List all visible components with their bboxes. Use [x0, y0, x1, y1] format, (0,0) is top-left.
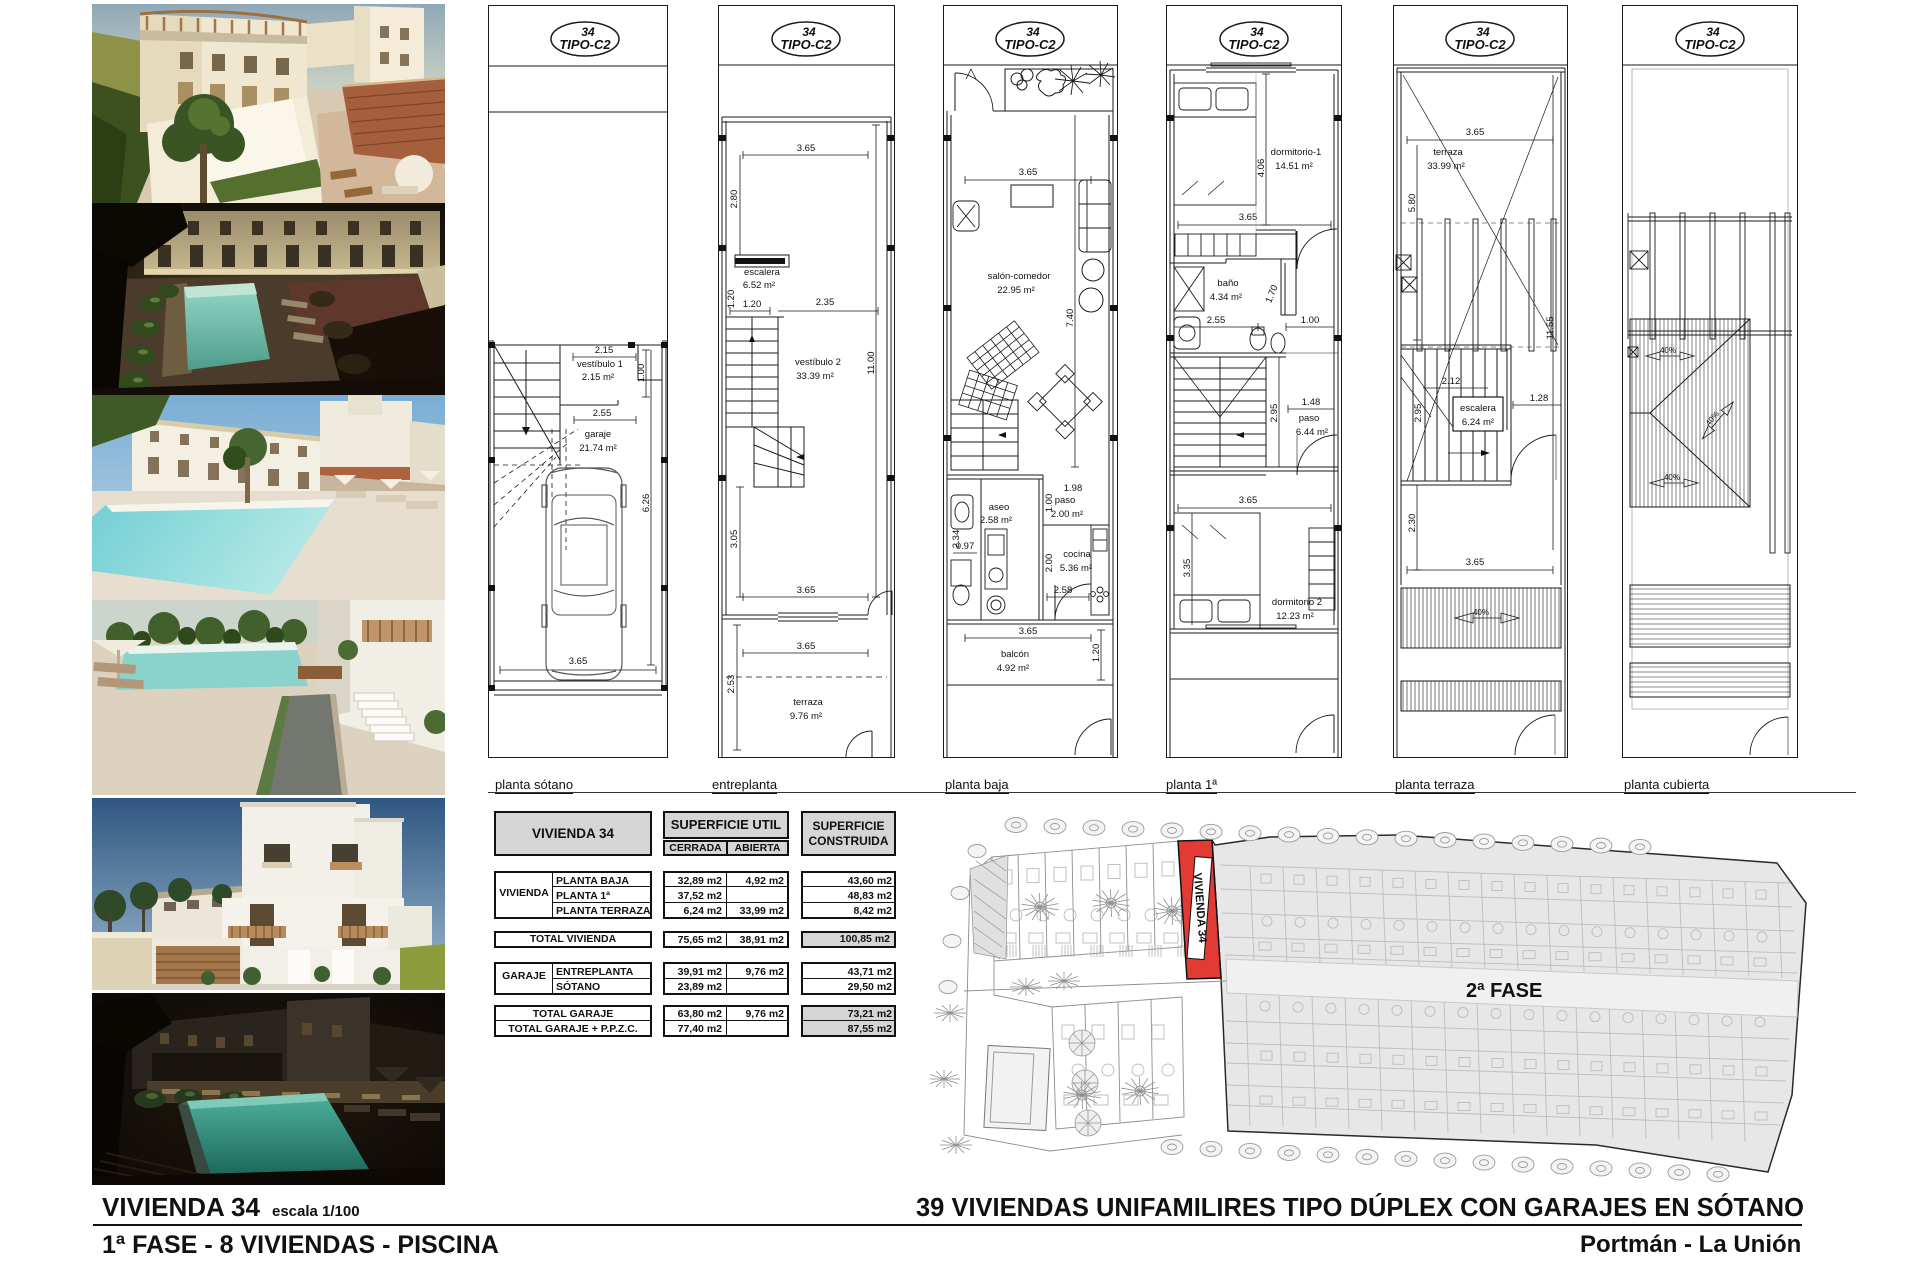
svg-text:1.70: 1.70	[1264, 283, 1281, 304]
svg-text:TIPO-C2: TIPO-C2	[559, 37, 611, 52]
svg-text:5.80: 5.80	[1407, 194, 1418, 213]
svg-text:2.00 m²: 2.00 m²	[1051, 509, 1083, 520]
svg-text:2.95: 2.95	[1413, 404, 1424, 423]
svg-text:2.34: 2.34	[951, 530, 962, 549]
svg-text:salón-comedor: salón-comedor	[988, 271, 1051, 282]
svg-text:40%: 40%	[1660, 346, 1676, 355]
svg-text:21.74 m²: 21.74 m²	[579, 443, 617, 454]
svg-text:escalera: escalera	[1460, 403, 1497, 414]
svg-text:3.65: 3.65	[1239, 212, 1258, 223]
svg-text:3.65: 3.65	[1466, 127, 1485, 138]
svg-text:2.53: 2.53	[726, 675, 737, 694]
svg-text:3.05: 3.05	[729, 530, 740, 549]
svg-text:1.00: 1.00	[1044, 494, 1055, 513]
svg-text:40%: 40%	[1704, 409, 1721, 427]
svg-text:2.15 m²: 2.15 m²	[582, 372, 614, 383]
svg-text:TIPO-C2: TIPO-C2	[1684, 37, 1736, 52]
svg-text:2.55: 2.55	[593, 408, 612, 419]
svg-text:TIPO-C2: TIPO-C2	[1004, 37, 1056, 52]
svg-text:balcón: balcón	[1001, 649, 1029, 660]
svg-text:2.15: 2.15	[595, 345, 614, 356]
svg-text:escalera: escalera	[744, 267, 781, 278]
svg-text:33.39 m²: 33.39 m²	[796, 371, 834, 382]
svg-text:1.00: 1.00	[636, 364, 647, 383]
svg-text:22.95 m²: 22.95 m²	[997, 285, 1035, 296]
svg-text:6.26: 6.26	[641, 494, 652, 513]
svg-text:2.95: 2.95	[1269, 404, 1280, 423]
svg-text:1.48: 1.48	[1302, 397, 1321, 408]
svg-text:garaje: garaje	[585, 429, 611, 440]
svg-text:TIPO-C2: TIPO-C2	[1454, 37, 1506, 52]
svg-text:TIPO-C2: TIPO-C2	[780, 37, 832, 52]
svg-text:4.34 m²: 4.34 m²	[1210, 292, 1242, 303]
svg-text:2.12: 2.12	[1442, 376, 1461, 387]
svg-text:paso: paso	[1055, 495, 1076, 506]
svg-text:3.65: 3.65	[1019, 626, 1038, 637]
svg-text:2.35: 2.35	[816, 297, 835, 308]
svg-text:3.35: 3.35	[1182, 559, 1193, 578]
svg-text:6.52 m²: 6.52 m²	[743, 280, 775, 291]
svg-text:11.00: 11.00	[866, 351, 877, 374]
svg-text:2.80: 2.80	[729, 190, 740, 209]
svg-text:3.65: 3.65	[1019, 167, 1038, 178]
svg-text:2.58 m²: 2.58 m²	[980, 515, 1012, 526]
svg-text:2.58: 2.58	[1054, 585, 1073, 596]
svg-text:cocina: cocina	[1063, 549, 1091, 560]
svg-text:3.65: 3.65	[797, 585, 816, 596]
svg-text:3.65: 3.65	[569, 656, 588, 667]
svg-text:33.99 m²: 33.99 m²	[1427, 161, 1465, 172]
svg-text:paso: paso	[1299, 413, 1320, 424]
svg-text:terraza: terraza	[793, 697, 823, 708]
svg-text:TIPO-C2: TIPO-C2	[1228, 37, 1280, 52]
svg-text:6.24 m²: 6.24 m²	[1462, 417, 1494, 428]
svg-text:6.44 m²: 6.44 m²	[1296, 427, 1328, 438]
svg-text:9.76 m²: 9.76 m²	[790, 711, 822, 722]
svg-text:11.55: 11.55	[1545, 316, 1556, 339]
svg-text:vestíbulo 1: vestíbulo 1	[577, 359, 623, 370]
svg-text:5.36 m²: 5.36 m²	[1060, 563, 1092, 574]
svg-text:40%: 40%	[1664, 473, 1680, 482]
svg-text:aseo: aseo	[989, 502, 1010, 513]
svg-text:dormitorio 2: dormitorio 2	[1272, 597, 1322, 608]
svg-text:1.98: 1.98	[1064, 483, 1083, 494]
svg-text:vestíbulo 2: vestíbulo 2	[795, 357, 841, 368]
svg-text:1.00: 1.00	[1301, 315, 1320, 326]
svg-text:terraza: terraza	[1433, 147, 1463, 158]
svg-text:12.23 m²: 12.23 m²	[1276, 611, 1314, 622]
svg-text:4.06: 4.06	[1256, 159, 1267, 178]
svg-text:1.28: 1.28	[1530, 393, 1549, 404]
svg-text:3.65: 3.65	[797, 641, 816, 652]
svg-text:dormitorio-1: dormitorio-1	[1271, 147, 1322, 158]
svg-text:4.92 m²: 4.92 m²	[997, 663, 1029, 674]
svg-text:1.20: 1.20	[726, 290, 737, 309]
svg-text:2ª FASE: 2ª FASE	[1466, 980, 1542, 1002]
svg-text:40%: 40%	[1473, 608, 1489, 617]
svg-text:2.30: 2.30	[1407, 514, 1418, 533]
svg-text:2.55: 2.55	[1207, 315, 1226, 326]
svg-text:14.51 m²: 14.51 m²	[1275, 161, 1313, 172]
svg-text:1.20: 1.20	[743, 299, 762, 310]
svg-text:7.40: 7.40	[1065, 309, 1076, 328]
svg-text:3.65: 3.65	[797, 143, 816, 154]
svg-text:3.65: 3.65	[1466, 557, 1485, 568]
svg-text:1.20: 1.20	[1091, 644, 1102, 663]
svg-text:baño: baño	[1217, 278, 1238, 289]
svg-text:2.00: 2.00	[1044, 554, 1055, 573]
svg-text:3.65: 3.65	[1239, 495, 1258, 506]
